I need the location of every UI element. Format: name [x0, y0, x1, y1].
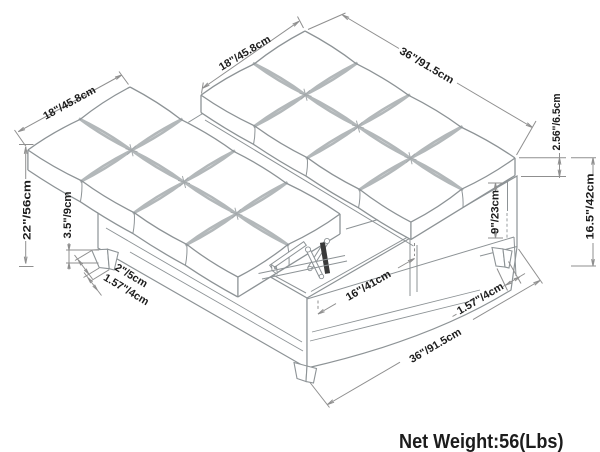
svg-text:3.5"/9cm: 3.5"/9cm — [62, 192, 74, 239]
svg-text:9"/23cm: 9"/23cm — [490, 190, 502, 234]
svg-text:16.5"/42cm: 16.5"/42cm — [585, 174, 597, 240]
svg-text:2.56"/6.5cm: 2.56"/6.5cm — [551, 94, 563, 151]
svg-text:22"/56cm: 22"/56cm — [22, 180, 34, 240]
svg-text:Net Weight:56(Lbs): Net Weight:56(Lbs) — [399, 431, 564, 452]
